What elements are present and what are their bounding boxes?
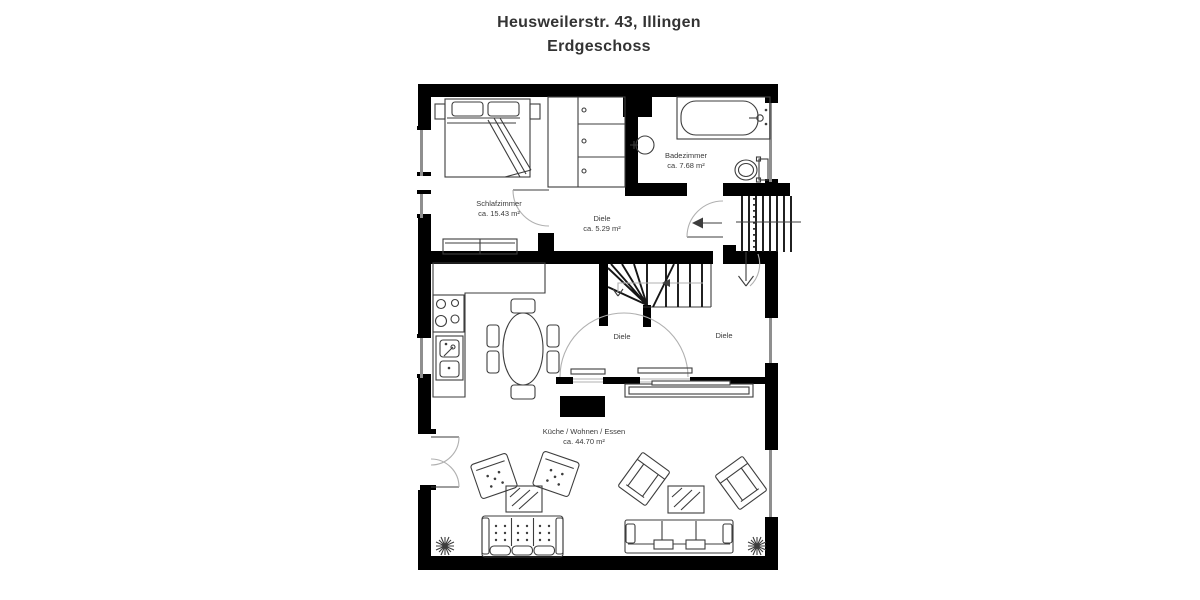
interior-stairs — [608, 264, 711, 307]
room-area-diele: ca. 5.29 m² — [583, 224, 621, 233]
stove — [433, 295, 464, 332]
floorplan-page: Heusweilerstr. 43, Illingen Erdgeschoss — [0, 0, 1200, 600]
wardrobe — [548, 97, 625, 187]
hall-window — [769, 318, 772, 363]
bedroom-window-1 — [420, 130, 423, 176]
entry-door — [687, 201, 723, 237]
floorplan-image: Heusweilerstr. 43, Illingen Erdgeschoss — [0, 0, 1200, 600]
french-door — [431, 437, 459, 487]
armchair-right-2 — [715, 456, 767, 510]
armchair-right-1 — [618, 452, 670, 506]
toilet — [735, 157, 768, 182]
room-area-schlafzimmer: ca. 15.43 m² — [478, 209, 520, 218]
sofa-left — [482, 516, 563, 557]
plant-right-icon — [748, 537, 766, 555]
plant-left-icon — [436, 537, 454, 555]
room-label-diele: Diele — [593, 214, 610, 223]
dining-table — [487, 299, 559, 399]
kitchen-sink — [436, 336, 463, 380]
livingroom-doors — [560, 313, 692, 382]
room-area-badezimmer: ca. 7.68 m² — [667, 161, 705, 170]
room-area-wohnen: ca. 44.70 m² — [563, 437, 605, 446]
windows — [420, 103, 772, 517]
kitchen-window — [420, 338, 423, 378]
armchair-left-1 — [470, 453, 518, 499]
entry-stairs — [692, 196, 801, 286]
livingroom-window — [769, 450, 772, 517]
bedroom-door — [513, 190, 549, 226]
room-label-diele-right: Diele — [715, 331, 732, 340]
entry-arrow-icon — [692, 218, 722, 229]
bedroom-window-2 — [420, 194, 423, 218]
room-label-badezimmer: Badezimmer — [665, 151, 708, 160]
room-label-wohnen: Küche / Wohnen / Essen — [543, 427, 625, 436]
plan-title: Heusweilerstr. 43, Illingen — [497, 14, 701, 31]
armchair-left-2 — [532, 451, 580, 497]
bathtub — [677, 97, 770, 139]
bed — [435, 99, 540, 177]
coffee-table-right — [668, 486, 704, 513]
coffee-table-left — [506, 486, 542, 512]
room-label-diele-left: Diele — [613, 332, 630, 341]
chimney — [560, 396, 605, 417]
plan-subtitle: Erdgeschoss — [547, 38, 651, 55]
room-label-schlafzimmer: Schlafzimmer — [476, 199, 522, 208]
sofa-right — [625, 520, 733, 553]
